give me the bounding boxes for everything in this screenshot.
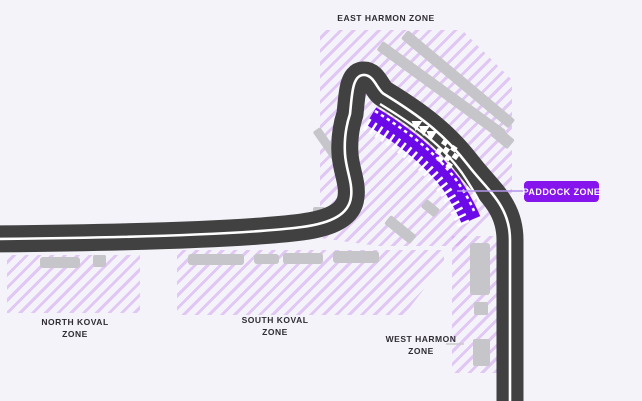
building [384,215,417,244]
east-harmon-zone-label: EAST HARMON ZONE [337,12,434,24]
building [254,254,279,264]
north-koval-zone-label: NORTH KOVAL ZONE [41,316,108,340]
south-koval-zone-label: SOUTH KOVAL ZONE [242,314,309,338]
building [470,243,490,295]
building [473,339,490,366]
building [474,302,488,315]
building [93,255,106,267]
circuit-map: EAST HARMON ZONE NORTH KOVAL ZONE SOUTH … [0,0,642,401]
building [421,199,441,217]
paddock-zone-button[interactable]: PADDOCK ZONE [524,181,599,202]
paddock-zone-button-label: PADDOCK ZONE [523,187,601,197]
building [188,254,244,265]
building [283,253,323,264]
west-harmon-zone-label: WEST HARMON ZONE [386,333,457,357]
building [40,257,80,268]
building [333,251,379,263]
